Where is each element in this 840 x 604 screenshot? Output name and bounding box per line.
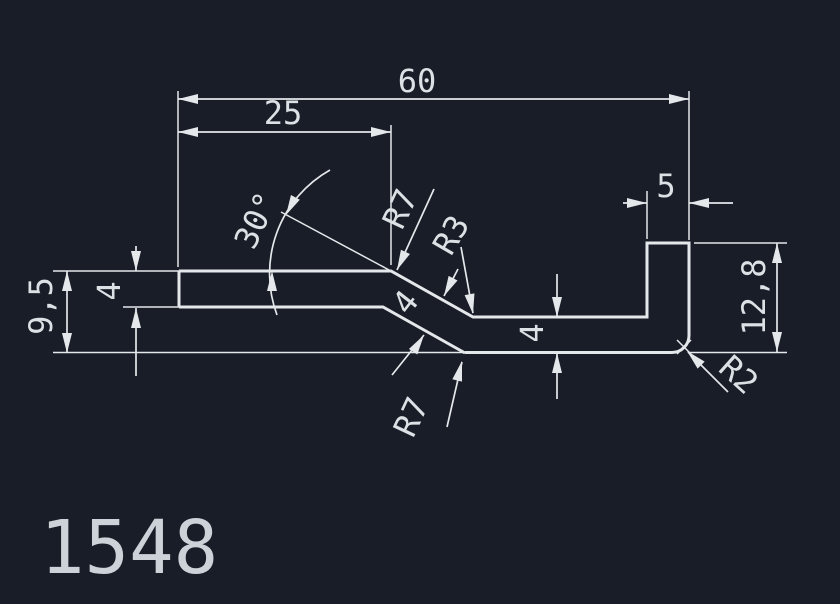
arrow-25-right [371, 127, 391, 137]
dim-4-mid-label: 4 [513, 323, 551, 342]
arrow-95-top [62, 271, 72, 291]
radius-r3-label: R3 [425, 209, 477, 261]
dim-60-label: 60 [398, 62, 437, 100]
arrow-arc-bottom [267, 271, 277, 291]
angle-arc-30 [270, 170, 330, 315]
dim-95-label: 9,5 [22, 277, 60, 335]
arrowheads [62, 94, 782, 382]
arrow-128-bottom [772, 332, 782, 352]
arrow-25-left [178, 127, 198, 137]
angle-30-label: 30° [227, 186, 286, 254]
arrow-r7-upper [392, 250, 410, 272]
ext-slant-ray [281, 212, 391, 271]
arrow-4left-bottom [131, 308, 141, 328]
drawing-canvas: 60 25 5 9,5 4 4 4 12,8 30° R7 R3 R7 R2 1… [0, 0, 840, 600]
arrow-r3 [465, 293, 478, 314]
radius-r2-label: R2 [712, 348, 766, 402]
arrow-128-top [772, 243, 782, 263]
arrow-95-bottom [62, 333, 72, 353]
extension-lines [53, 91, 787, 354]
part-number: 1548 [40, 505, 218, 591]
dim-4-left-label: 4 [90, 281, 128, 300]
dimension-lines [67, 99, 777, 427]
arrow-60-right [669, 94, 689, 104]
part-outline [179, 243, 689, 353]
dim-5-label: 5 [656, 167, 675, 205]
arrow-4left-top [131, 251, 141, 271]
arrow-5-left [627, 198, 647, 208]
dim-25-label: 25 [264, 94, 303, 132]
arrow-5-right [689, 198, 709, 208]
radius-r7-upper-label: R7 [375, 183, 426, 234]
arrow-4mid-top [552, 297, 562, 317]
arrow-4slant-upper [440, 276, 458, 298]
dim-128-label: 12,8 [735, 258, 773, 335]
arrow-60-left [178, 94, 198, 104]
cad-viewport: 60 25 5 9,5 4 4 4 12,8 30° R7 R3 R7 R2 1… [0, 0, 840, 600]
part-bottom-contour [179, 307, 465, 353]
arrow-4mid-bottom [552, 353, 562, 373]
radius-r7-lower-label: R7 [386, 391, 437, 442]
arrow-r7-lower [452, 360, 467, 382]
